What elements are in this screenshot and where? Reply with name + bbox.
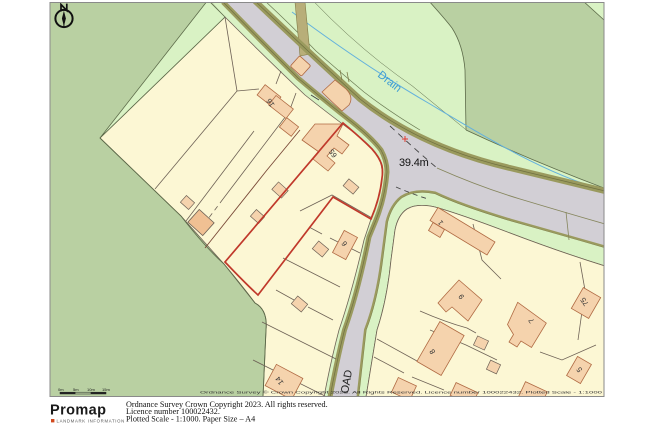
svg-text:5m: 5m xyxy=(73,387,79,392)
svg-text:0m: 0m xyxy=(58,387,64,392)
svg-text:Ordnance Survey © Crown Copyri: Ordnance Survey © Crown Copyright 2023. … xyxy=(200,390,604,395)
svg-text:Plotted Scale - 1:1000. Paper: Plotted Scale - 1:1000. Paper Size – A4 xyxy=(126,415,255,424)
svg-text:15m: 15m xyxy=(102,387,110,392)
svg-text:10m: 10m xyxy=(87,387,95,392)
svg-text:LANDMARK INFORMATION: LANDMARK INFORMATION xyxy=(57,419,125,424)
svg-text:39.4m: 39.4m xyxy=(399,157,429,169)
svg-text:Promap: Promap xyxy=(50,402,106,418)
